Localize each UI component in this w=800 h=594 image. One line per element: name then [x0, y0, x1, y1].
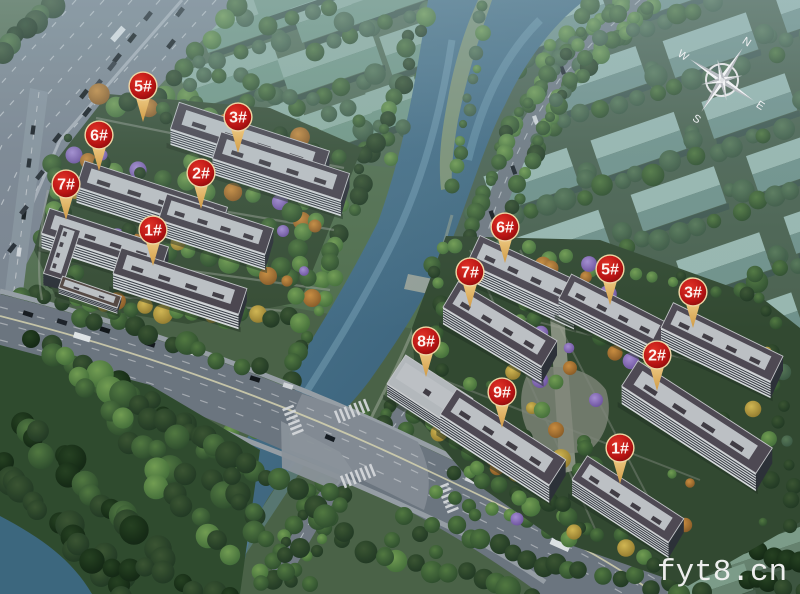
svg-text:2#: 2# — [648, 348, 666, 365]
svg-text:6#: 6# — [496, 220, 514, 237]
svg-text:3#: 3# — [229, 110, 247, 127]
svg-text:7#: 7# — [57, 177, 75, 194]
svg-text:1#: 1# — [144, 223, 162, 240]
svg-text:2#: 2# — [192, 166, 210, 183]
svg-text:3#: 3# — [684, 285, 702, 302]
svg-text:fyt8.cn: fyt8.cn — [657, 555, 787, 590]
svg-text:5#: 5# — [601, 262, 619, 279]
svg-text:6#: 6# — [90, 128, 108, 145]
svg-text:7#: 7# — [461, 265, 479, 282]
svg-text:1#: 1# — [611, 441, 629, 458]
svg-text:5#: 5# — [134, 79, 152, 96]
svg-text:8#: 8# — [417, 334, 435, 351]
svg-text:9#: 9# — [493, 385, 511, 402]
